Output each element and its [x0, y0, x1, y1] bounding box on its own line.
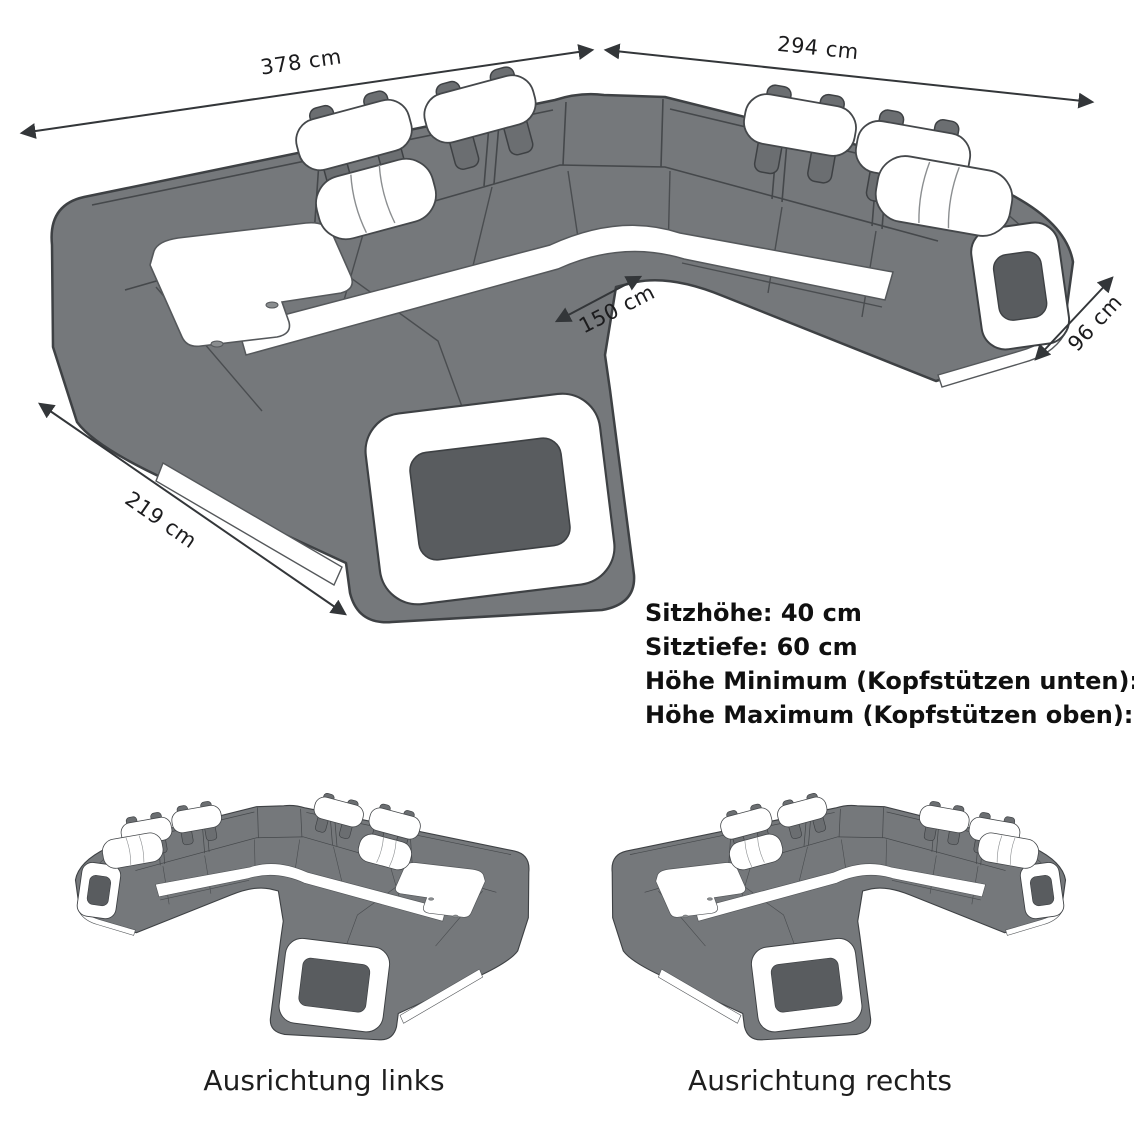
sofa-main-drawing: [52, 65, 1073, 622]
spec-seat-height: Sitzhöhe: 40 cm: [645, 596, 1134, 630]
spec-height-min: Höhe Minimum (Kopfstützen unten): 80 cm: [645, 664, 1134, 698]
spec-height-max: Höhe Maximum (Kopfstützen oben): 98 cm: [645, 698, 1134, 732]
sofa-variant-right: [612, 793, 1066, 1040]
diagram-canvas: [0, 0, 1134, 1134]
sofa-variant-left: [75, 793, 529, 1040]
spec-seat-depth: Sitztiefe: 60 cm: [645, 630, 1134, 664]
variant-label-rechts: Ausrichtung rechts: [688, 1064, 952, 1097]
variant-label-links: Ausrichtung links: [203, 1064, 444, 1097]
sofa-dimension-diagram: 378 cm 294 cm 219 cm 150 cm 96 cm Sitzhö…: [0, 0, 1134, 1134]
specs-block: Sitzhöhe: 40 cm Sitztiefe: 60 cm Höhe Mi…: [645, 596, 1134, 732]
